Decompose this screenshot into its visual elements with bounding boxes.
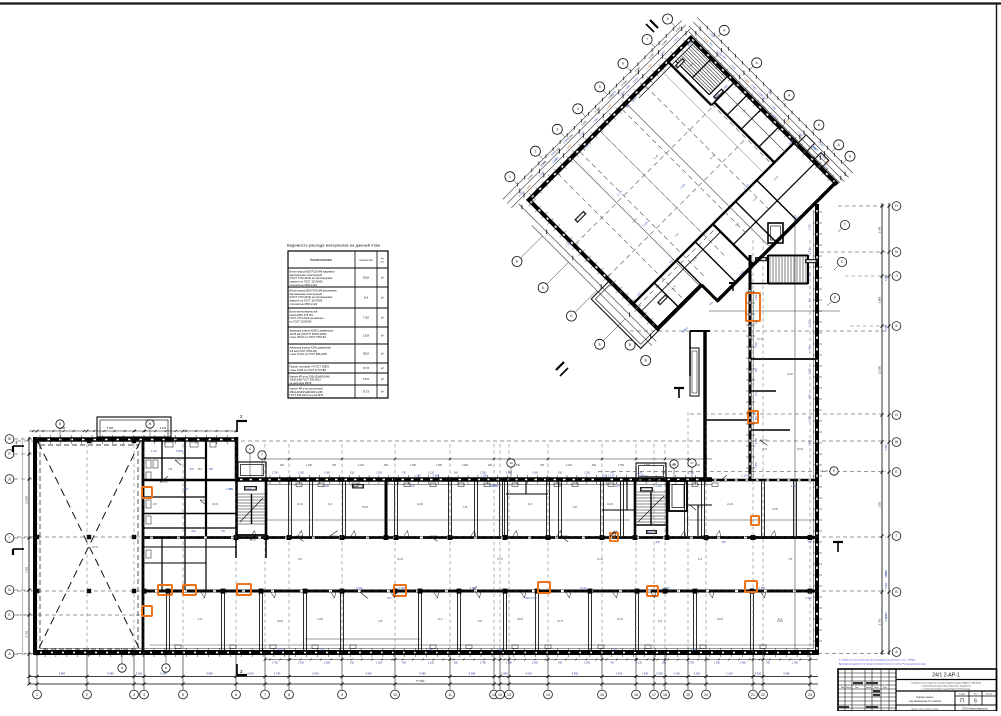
svg-text:В: В — [629, 343, 631, 347]
svg-text:910: 910 — [615, 484, 620, 488]
svg-text:21: 21 — [751, 693, 755, 697]
svg-text:2 120: 2 120 — [566, 464, 573, 467]
svg-text:2 120: 2 120 — [428, 662, 435, 665]
svg-text:11: 11 — [448, 693, 452, 697]
svg-text:600: 600 — [592, 464, 597, 467]
svg-text:54,20: 54,20 — [277, 621, 283, 623]
svg-text:Дата: Дата — [883, 687, 887, 689]
svg-text:600: 600 — [209, 468, 214, 471]
svg-text:7: 7 — [261, 453, 263, 457]
svg-text:12 300: 12 300 — [878, 365, 882, 373]
svg-text:класса В15 F75 W4: класса В15 F75 W4 — [290, 313, 314, 317]
svg-text:2 780: 2 780 — [688, 662, 695, 665]
svg-text:3 000: 3 000 — [532, 472, 539, 475]
svg-text:П: П — [960, 699, 964, 705]
svg-text:3 000: 3 000 — [323, 484, 330, 488]
svg-text:8,73: 8,73 — [363, 366, 369, 370]
svg-text:5 290: 5 290 — [755, 672, 762, 676]
svg-text:760: 760 — [332, 464, 337, 467]
svg-text:Ведомость расхода материалов н: Ведомость расхода материалов на данный э… — [287, 243, 380, 248]
svg-text:7: 7 — [264, 693, 266, 697]
svg-text:6: 6 — [622, 62, 624, 66]
svg-text:31,6: 31,6 — [778, 619, 783, 621]
svg-text:5 980: 5 980 — [691, 648, 698, 652]
svg-text:2 780: 2 780 — [272, 662, 279, 665]
svg-text:Б: Б — [599, 342, 601, 346]
svg-text:5: 5 — [182, 693, 184, 697]
svg-text:5 980: 5 980 — [419, 672, 426, 676]
svg-text:Лист: Лист — [973, 694, 977, 696]
svg-text:плотностью 2500 кг/м3: плотностью 2500 кг/м3 — [290, 302, 318, 306]
svg-text:760: 760 — [247, 488, 252, 491]
svg-text:2 590: 2 590 — [656, 672, 663, 676]
svg-text:7,25: 7,25 — [168, 469, 173, 471]
svg-text:2 120: 2 120 — [636, 472, 643, 475]
svg-text:сталь 25Г2С по ГОСТ 5781-82: сталь 25Г2С по ГОСТ 5781-82 — [290, 335, 327, 339]
svg-text:Бетон мелкозернистый: Бетон мелкозернистый — [290, 309, 318, 313]
svg-text:Бетон класса В25 F150 W6 наруж: Бетон класса В25 F150 W6 наружных — [290, 269, 336, 273]
svg-text:21,40: 21,40 — [617, 619, 623, 621]
svg-text:53,8: 53,8 — [363, 276, 369, 280]
svg-text:2 120: 2 120 — [428, 472, 435, 475]
svg-text:3 000: 3 000 — [532, 662, 539, 665]
svg-text:м³: м³ — [381, 297, 384, 300]
svg-text:1: 1 — [36, 693, 38, 697]
svg-text:м³: м³ — [381, 317, 384, 320]
svg-text:2 120: 2 120 — [358, 464, 365, 467]
svg-text:2 120: 2 120 — [655, 484, 662, 488]
svg-text:24/1 2-АР-1: 24/1 2-АР-1 — [932, 673, 960, 679]
svg-text:1 200: 1 200 — [726, 672, 733, 676]
svg-text:Количество: Количество — [360, 259, 374, 262]
svg-text:12,80: 12,80 — [777, 621, 783, 623]
svg-text:5 980: 5 980 — [885, 570, 888, 577]
svg-text:5 980: 5 980 — [107, 426, 114, 430]
svg-text:Б: Б — [570, 314, 572, 318]
svg-text:17: 17 — [690, 461, 694, 465]
svg-text:2 120: 2 120 — [151, 450, 158, 453]
svg-text:Листов: Листов — [986, 694, 992, 696]
svg-text:цементе по ГОСТ 10178-85: цементе по ГОСТ 10178-85 — [290, 299, 323, 303]
svg-text:2 120: 2 120 — [741, 474, 748, 478]
svg-text:54,20: 54,20 — [797, 449, 803, 451]
svg-text:600: 600 — [602, 474, 607, 478]
svg-text:Лист: Лист — [855, 687, 859, 689]
svg-text:под размещение 6-х классов: под размещение 6-х классов — [909, 700, 942, 703]
svg-text:5 290: 5 290 — [694, 672, 701, 676]
svg-text:54,20: 54,20 — [717, 619, 723, 621]
svg-text:31,6: 31,6 — [198, 469, 203, 471]
svg-text:Ед.: Ед. — [381, 258, 385, 260]
svg-text:1 200: 1 200 — [584, 662, 591, 665]
svg-text:600: 600 — [722, 540, 727, 544]
svg-text:760: 760 — [610, 662, 615, 665]
svg-text:910: 910 — [766, 662, 771, 665]
svg-text:5 980: 5 980 — [59, 672, 66, 676]
svg-text:м³: м³ — [381, 353, 384, 356]
svg-text:5 980: 5 980 — [365, 672, 372, 676]
svg-text:5 980: 5 980 — [206, 672, 213, 676]
svg-text:5 980: 5 980 — [885, 274, 888, 281]
svg-text:2 400: 2 400 — [399, 586, 406, 590]
svg-text:2 780: 2 780 — [756, 438, 758, 444]
svg-text:Стадия: Стадия — [959, 694, 965, 696]
svg-text:760: 760 — [808, 540, 813, 544]
svg-text:3 000: 3 000 — [324, 472, 331, 475]
svg-text:2: 2 — [86, 693, 88, 697]
svg-text:15,75: 15,75 — [757, 339, 763, 341]
svg-text:плотностью 2500 кг/м3: плотностью 2500 кг/м3 — [290, 283, 318, 287]
svg-text:16: 16 — [634, 693, 638, 697]
svg-text:Внутр. общ. помещ. этажа: Внутр. общ. помещ. этажа — [912, 709, 940, 711]
svg-text:Кирпич КР-р-по пустотелый: Кирпич КР-р-по пустотелый — [290, 386, 324, 390]
svg-text:1 200: 1 200 — [584, 472, 591, 475]
svg-text:изм.: изм. — [380, 262, 385, 264]
svg-text:8: 8 — [288, 693, 290, 697]
svg-text:600: 600 — [190, 468, 195, 471]
svg-text:4 620: 4 620 — [160, 426, 167, 430]
svg-text:Кол.уч.: Кол.уч. — [846, 687, 852, 689]
svg-text:Л: Л — [895, 274, 897, 278]
svg-text:6: 6 — [974, 699, 977, 705]
svg-text:м³: м³ — [381, 391, 384, 394]
svg-text:1 200: 1 200 — [318, 648, 325, 652]
svg-text:Г: Г — [896, 534, 898, 538]
svg-text:18,20: 18,20 — [212, 504, 218, 506]
svg-text:2 790: 2 790 — [274, 672, 281, 676]
svg-text:250х120х65/1НФ/100/1,4/35: 250х120х65/1НФ/100/1,4/35 — [290, 390, 324, 394]
svg-text:5 980: 5 980 — [501, 672, 508, 676]
svg-text:м³: м³ — [381, 378, 384, 381]
svg-text:15,75: 15,75 — [697, 507, 703, 509]
svg-text:1 200: 1 200 — [792, 662, 799, 665]
svg-text:1 300: 1 300 — [642, 672, 649, 676]
svg-text:3 000: 3 000 — [277, 648, 284, 652]
svg-text:1 200: 1 200 — [514, 464, 521, 467]
svg-text:3,14: 3,14 — [658, 621, 663, 623]
svg-text:5 980: 5 980 — [885, 615, 888, 622]
svg-text:15,75: 15,75 — [92, 547, 98, 549]
svg-text:13: 13 — [507, 693, 511, 697]
svg-text:12,80: 12,80 — [772, 509, 778, 511]
svg-text:15: 15 — [600, 693, 604, 697]
svg-text:19: 19 — [686, 693, 690, 697]
svg-text:с углубленным изучением отдель: с углубленным изучением отдельных предме… — [921, 686, 971, 688]
svg-text:7,25: 7,25 — [378, 621, 383, 623]
svg-text:600: 600 — [454, 662, 459, 665]
svg-text:1 200: 1 200 — [376, 662, 383, 665]
svg-text:ГОСТ 7473-2010 на цементе: ГОСТ 7473-2010 на цементе — [290, 316, 325, 320]
svg-text:7,62: 7,62 — [363, 316, 369, 320]
svg-text:600: 600 — [497, 648, 502, 652]
svg-text:Е: Е — [833, 469, 835, 473]
svg-text:2,97: 2,97 — [153, 504, 158, 506]
svg-text:2 120: 2 120 — [756, 390, 758, 396]
svg-text:3.150: 3.150 — [356, 586, 363, 590]
svg-text:600: 600 — [662, 662, 667, 665]
svg-text:600: 600 — [429, 648, 434, 652]
svg-text:760: 760 — [221, 530, 226, 533]
svg-text:18,20: 18,20 — [397, 559, 403, 561]
svg-text:Б: Б — [516, 260, 518, 264]
svg-text:6: 6 — [249, 447, 251, 451]
svg-text:Г: Г — [9, 536, 11, 540]
svg-text:1.500: 1.500 — [791, 484, 798, 488]
svg-text:910: 910 — [488, 464, 493, 467]
svg-text:Ж: Ж — [149, 422, 152, 426]
svg-text:3,14: 3,14 — [328, 504, 333, 506]
svg-text:760: 760 — [540, 464, 545, 467]
svg-text:3: 3 — [556, 128, 558, 132]
svg-text:10: 10 — [393, 693, 397, 697]
svg-text:14: 14 — [546, 693, 550, 697]
svg-text:на растворе М100: на растворе М100 — [290, 381, 312, 385]
svg-text:1 500: 1 500 — [506, 662, 513, 665]
svg-text:15,75: 15,75 — [497, 559, 503, 561]
svg-text:50,5: 50,5 — [363, 352, 369, 356]
svg-text:54,20: 54,20 — [362, 507, 368, 509]
svg-text:3,14: 3,14 — [198, 619, 203, 621]
svg-text:М: М — [895, 250, 898, 254]
svg-text:3 000: 3 000 — [663, 586, 670, 590]
svg-text:3,14: 3,14 — [698, 559, 703, 561]
svg-text:7 200: 7 200 — [25, 566, 29, 573]
svg-text:5 140: 5 140 — [878, 226, 882, 233]
svg-text:В: В — [645, 359, 647, 363]
svg-text:760: 760 — [647, 531, 652, 535]
svg-text:9: 9 — [341, 693, 343, 697]
svg-text:12,80: 12,80 — [417, 504, 423, 506]
svg-text:1 200: 1 200 — [756, 342, 758, 348]
svg-text:2 780: 2 780 — [272, 472, 279, 475]
svg-text:760: 760 — [613, 648, 618, 652]
svg-text:3 990: 3 990 — [572, 672, 579, 676]
svg-text:5 980: 5 980 — [176, 450, 183, 453]
svg-text:15,8: 15,8 — [363, 334, 369, 338]
svg-text:10-25 мм (ГОСТ Р 52544-2006): 10-25 мм (ГОСТ Р 52544-2006) — [290, 332, 327, 336]
svg-text:21 000: 21 000 — [25, 495, 29, 503]
svg-text:910: 910 — [558, 662, 563, 665]
svg-text:18: 18 — [663, 693, 667, 697]
svg-text:17: 17 — [652, 693, 656, 697]
svg-text:1 500: 1 500 — [756, 462, 758, 468]
svg-text:1: 1 — [509, 175, 511, 179]
svg-text:3 000: 3 000 — [740, 662, 747, 665]
svg-text:2 300: 2 300 — [616, 672, 623, 676]
svg-text:5 380: 5 380 — [469, 672, 476, 676]
svg-text:10: 10 — [509, 461, 513, 465]
svg-text:7,25: 7,25 — [788, 559, 793, 561]
svg-text:Строительство отдельно стоящег: Строительство отдельно стоящего здания к… — [911, 682, 981, 685]
svg-text:5 980: 5 980 — [885, 324, 888, 331]
svg-text:4: 4 — [577, 107, 579, 111]
svg-text:3 000: 3 000 — [530, 596, 537, 600]
svg-text:5 980: 5 980 — [107, 672, 114, 676]
svg-text:м³: м³ — [381, 335, 384, 338]
svg-text:1 500: 1 500 — [644, 464, 651, 467]
svg-text:4: 4 — [143, 693, 145, 697]
svg-text:Прокат листовой т.4 ГОСТ 19903: Прокат листовой т.4 ГОСТ 19903 — [290, 364, 330, 368]
svg-text:м³: м³ — [381, 277, 384, 280]
svg-text:910: 910 — [558, 472, 563, 475]
svg-text:(ГОСТ 7473-2010) на портландск: (ГОСТ 7473-2010) на портландском — [290, 295, 333, 299]
svg-text:Корпус школы: Корпус школы — [916, 695, 933, 699]
svg-text:7,25: 7,25 — [463, 507, 468, 509]
svg-text:2 780: 2 780 — [810, 224, 812, 230]
svg-text:3: 3 — [133, 693, 135, 697]
svg-text:1 500: 1 500 — [506, 472, 513, 475]
svg-text:910: 910 — [350, 472, 355, 475]
svg-text:21,40: 21,40 — [727, 504, 733, 506]
svg-text:760: 760 — [610, 472, 615, 475]
svg-text:5: 5 — [599, 85, 601, 89]
svg-text:1 200: 1 200 — [810, 320, 812, 326]
svg-text:2,97: 2,97 — [573, 507, 578, 509]
svg-text:21,40: 21,40 — [597, 559, 603, 561]
svg-text:Арматура класса А500С диаметро: Арматура класса А500С диаметром — [290, 328, 334, 332]
svg-text:Подп.: Подп. — [874, 687, 879, 689]
svg-text:7: 7 — [646, 38, 648, 42]
svg-text:м³: м³ — [381, 367, 384, 370]
svg-text:Арматура класса А240 диаметром: Арматура класса А240 диаметром — [290, 345, 332, 349]
svg-text:Бетон класса В25 F150 W6 внутр: Бетон класса В25 F150 W6 внутренних — [290, 288, 338, 292]
svg-text:3 000: 3 000 — [136, 672, 143, 676]
svg-text:18,20: 18,20 — [607, 504, 613, 506]
svg-text:3 000: 3 000 — [470, 586, 477, 590]
svg-text:1 500: 1 500 — [298, 662, 305, 665]
svg-text:3,14: 3,14 — [763, 449, 768, 451]
svg-text:Р: Р — [834, 296, 836, 300]
svg-text:5 860: 5 860 — [878, 296, 882, 303]
svg-text:20: 20 — [704, 693, 708, 697]
svg-text:цементе по ГОСТ 10178-85: цементе по ГОСТ 10178-85 — [290, 280, 323, 284]
svg-text:18,20: 18,20 — [517, 619, 523, 621]
svg-text:Б: Б — [121, 666, 123, 670]
svg-text:2 780: 2 780 — [810, 416, 812, 422]
svg-text:31,6: 31,6 — [528, 504, 533, 506]
svg-text:(ГОСТ 7473-2010) на портландск: (ГОСТ 7473-2010) на портландском — [290, 276, 333, 280]
svg-text:№док.: №док. — [866, 686, 872, 689]
svg-text:Наименование: Наименование — [310, 258, 332, 262]
svg-text:2,97: 2,97 — [298, 559, 303, 561]
svg-text:2: 2 — [534, 149, 536, 153]
svg-text:Изм.: Изм. — [841, 687, 845, 689]
svg-text:600: 600 — [387, 596, 392, 600]
svg-text:Арматура укладывается в стробу: Арматура укладывается в стробу, использу… — [839, 663, 926, 666]
svg-text:3 000: 3 000 — [324, 662, 331, 665]
svg-text:6 000: 6 000 — [525, 672, 532, 676]
svg-text:ООО«Новые кварталы»: ООО«Новые кварталы» — [962, 709, 988, 711]
svg-text:1. Отверстия технологические п: 1. Отверстия технологические при необход… — [839, 660, 916, 662]
svg-text:5 980: 5 980 — [885, 582, 888, 589]
svg-text:600: 600 — [454, 472, 459, 475]
svg-text:600: 600 — [662, 472, 667, 475]
svg-text:1 200: 1 200 — [306, 464, 313, 467]
svg-text:К: К — [896, 324, 898, 328]
svg-text:4 620: 4 620 — [247, 672, 254, 676]
svg-text:910: 910 — [280, 464, 285, 467]
svg-text:23: 23 — [808, 693, 812, 697]
svg-text:1 500: 1 500 — [714, 662, 721, 665]
svg-text:3 000: 3 000 — [756, 294, 758, 300]
svg-text:2 400: 2 400 — [805, 596, 812, 600]
svg-text:вертикальных конструкций: вертикальных конструкций — [290, 273, 323, 277]
svg-text:100/2,0/50 ГОСТ 530-2012: 100/2,0/50 ГОСТ 530-2012 — [290, 378, 322, 382]
svg-text:910: 910 — [410, 484, 415, 488]
svg-text:1 500: 1 500 — [810, 248, 812, 254]
svg-text:1 500: 1 500 — [810, 440, 812, 446]
svg-text:1 200: 1 200 — [759, 586, 766, 590]
svg-text:Кирпич КР-р-по 250х120х65/1НФ/: Кирпич КР-р-по 250х120х65/1НФ/ — [290, 374, 330, 378]
svg-text:2 400: 2 400 — [182, 488, 189, 491]
svg-text:31,6: 31,6 — [438, 619, 443, 621]
svg-text:2 780: 2 780 — [410, 464, 417, 467]
svg-text:Б: Б — [542, 286, 544, 290]
svg-text:сталь С245 по ГОСТ 27772-88: сталь С245 по ГОСТ 27772-88 — [290, 368, 327, 372]
svg-text:В: В — [165, 666, 167, 670]
svg-text:600: 600 — [191, 530, 196, 533]
svg-text:3 000: 3 000 — [810, 272, 812, 278]
svg-text:21,40: 21,40 — [297, 504, 303, 506]
svg-text:3 000: 3 000 — [462, 464, 469, 467]
svg-text:3.150: 3.150 — [492, 484, 499, 488]
svg-text:по ГОСТ 10178-85: по ГОСТ 10178-85 — [290, 320, 312, 324]
svg-text:в Советском районе города Нижн: в Советском районе города Нижнего Новгор… — [922, 688, 971, 691]
svg-text:910: 910 — [696, 464, 701, 467]
svg-text:12,80: 12,80 — [317, 619, 323, 621]
svg-text:1 500: 1 500 — [436, 464, 443, 467]
svg-text:1 200: 1 200 — [414, 474, 421, 478]
svg-text:2 780: 2 780 — [480, 662, 487, 665]
svg-text:вертикальных конструкций: вертикальных конструкций — [290, 292, 323, 296]
svg-text:ГОСТ 530-2012 на р-ре М75: ГОСТ 530-2012 на р-ре М75 — [290, 393, 324, 397]
svg-text:21,40: 21,40 — [787, 374, 793, 376]
svg-text:5,4: 5,4 — [364, 296, 369, 300]
svg-text:5 980: 5 980 — [885, 444, 888, 451]
svg-text:1 500: 1 500 — [298, 472, 305, 475]
svg-text:2,97: 2,97 — [478, 621, 483, 623]
svg-text:910: 910 — [350, 662, 355, 665]
svg-text:2 100: 2 100 — [673, 672, 680, 676]
svg-text:2 780: 2 780 — [480, 472, 487, 475]
svg-text:22: 22 — [761, 693, 765, 697]
svg-text:6 000: 6 000 — [312, 672, 319, 676]
svg-text:600: 600 — [384, 464, 389, 467]
svg-text:77 280: 77 280 — [416, 679, 425, 683]
svg-text:2 780: 2 780 — [688, 472, 695, 475]
svg-text:5 700: 5 700 — [25, 630, 29, 637]
svg-text:Т: Т — [844, 223, 846, 227]
svg-text:8: 8 — [667, 17, 669, 21]
svg-text:3 000: 3 000 — [670, 464, 677, 467]
svg-text:6-8 мм (ГОСТ 5781-82): 6-8 мм (ГОСТ 5781-82) — [290, 349, 318, 353]
svg-text:2 780: 2 780 — [618, 464, 625, 467]
svg-text:15,75: 15,75 — [557, 621, 563, 623]
svg-text:сталь Ст3пс по ГОСТ 380-2005: сталь Ст3пс по ГОСТ 380-2005 — [290, 352, 328, 356]
svg-text:1 200: 1 200 — [376, 472, 383, 475]
svg-text:760: 760 — [402, 472, 407, 475]
svg-text:600: 600 — [656, 540, 661, 544]
svg-text:2 120: 2 120 — [636, 662, 643, 665]
svg-text:2 120: 2 120 — [810, 368, 812, 374]
svg-text:2 120: 2 120 — [580, 586, 587, 590]
svg-text:13,5: 13,5 — [363, 377, 369, 381]
svg-text:5 980: 5 980 — [783, 672, 790, 676]
svg-text:9,73: 9,73 — [363, 390, 369, 394]
svg-text:760: 760 — [402, 662, 407, 665]
svg-text:13: 13 — [498, 693, 502, 697]
svg-text:6: 6 — [235, 693, 237, 697]
